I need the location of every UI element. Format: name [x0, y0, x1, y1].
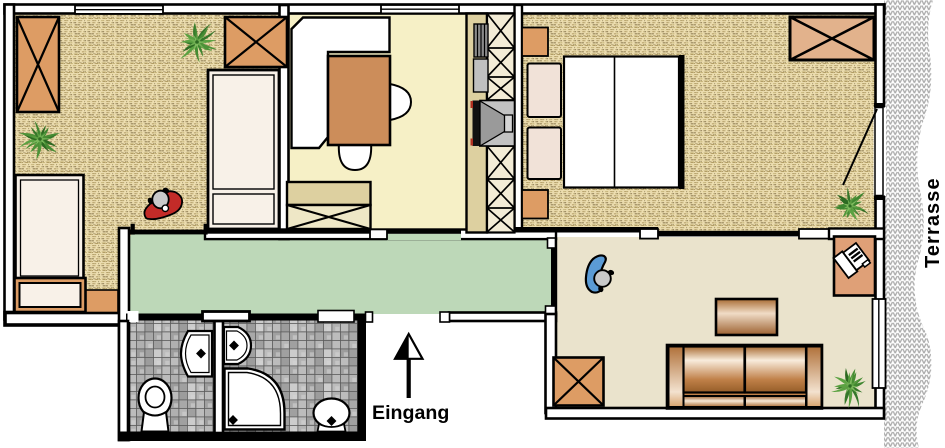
svg-text:Terrasse: Terrasse	[922, 177, 944, 268]
svg-text:Eingang: Eingang	[372, 402, 449, 424]
